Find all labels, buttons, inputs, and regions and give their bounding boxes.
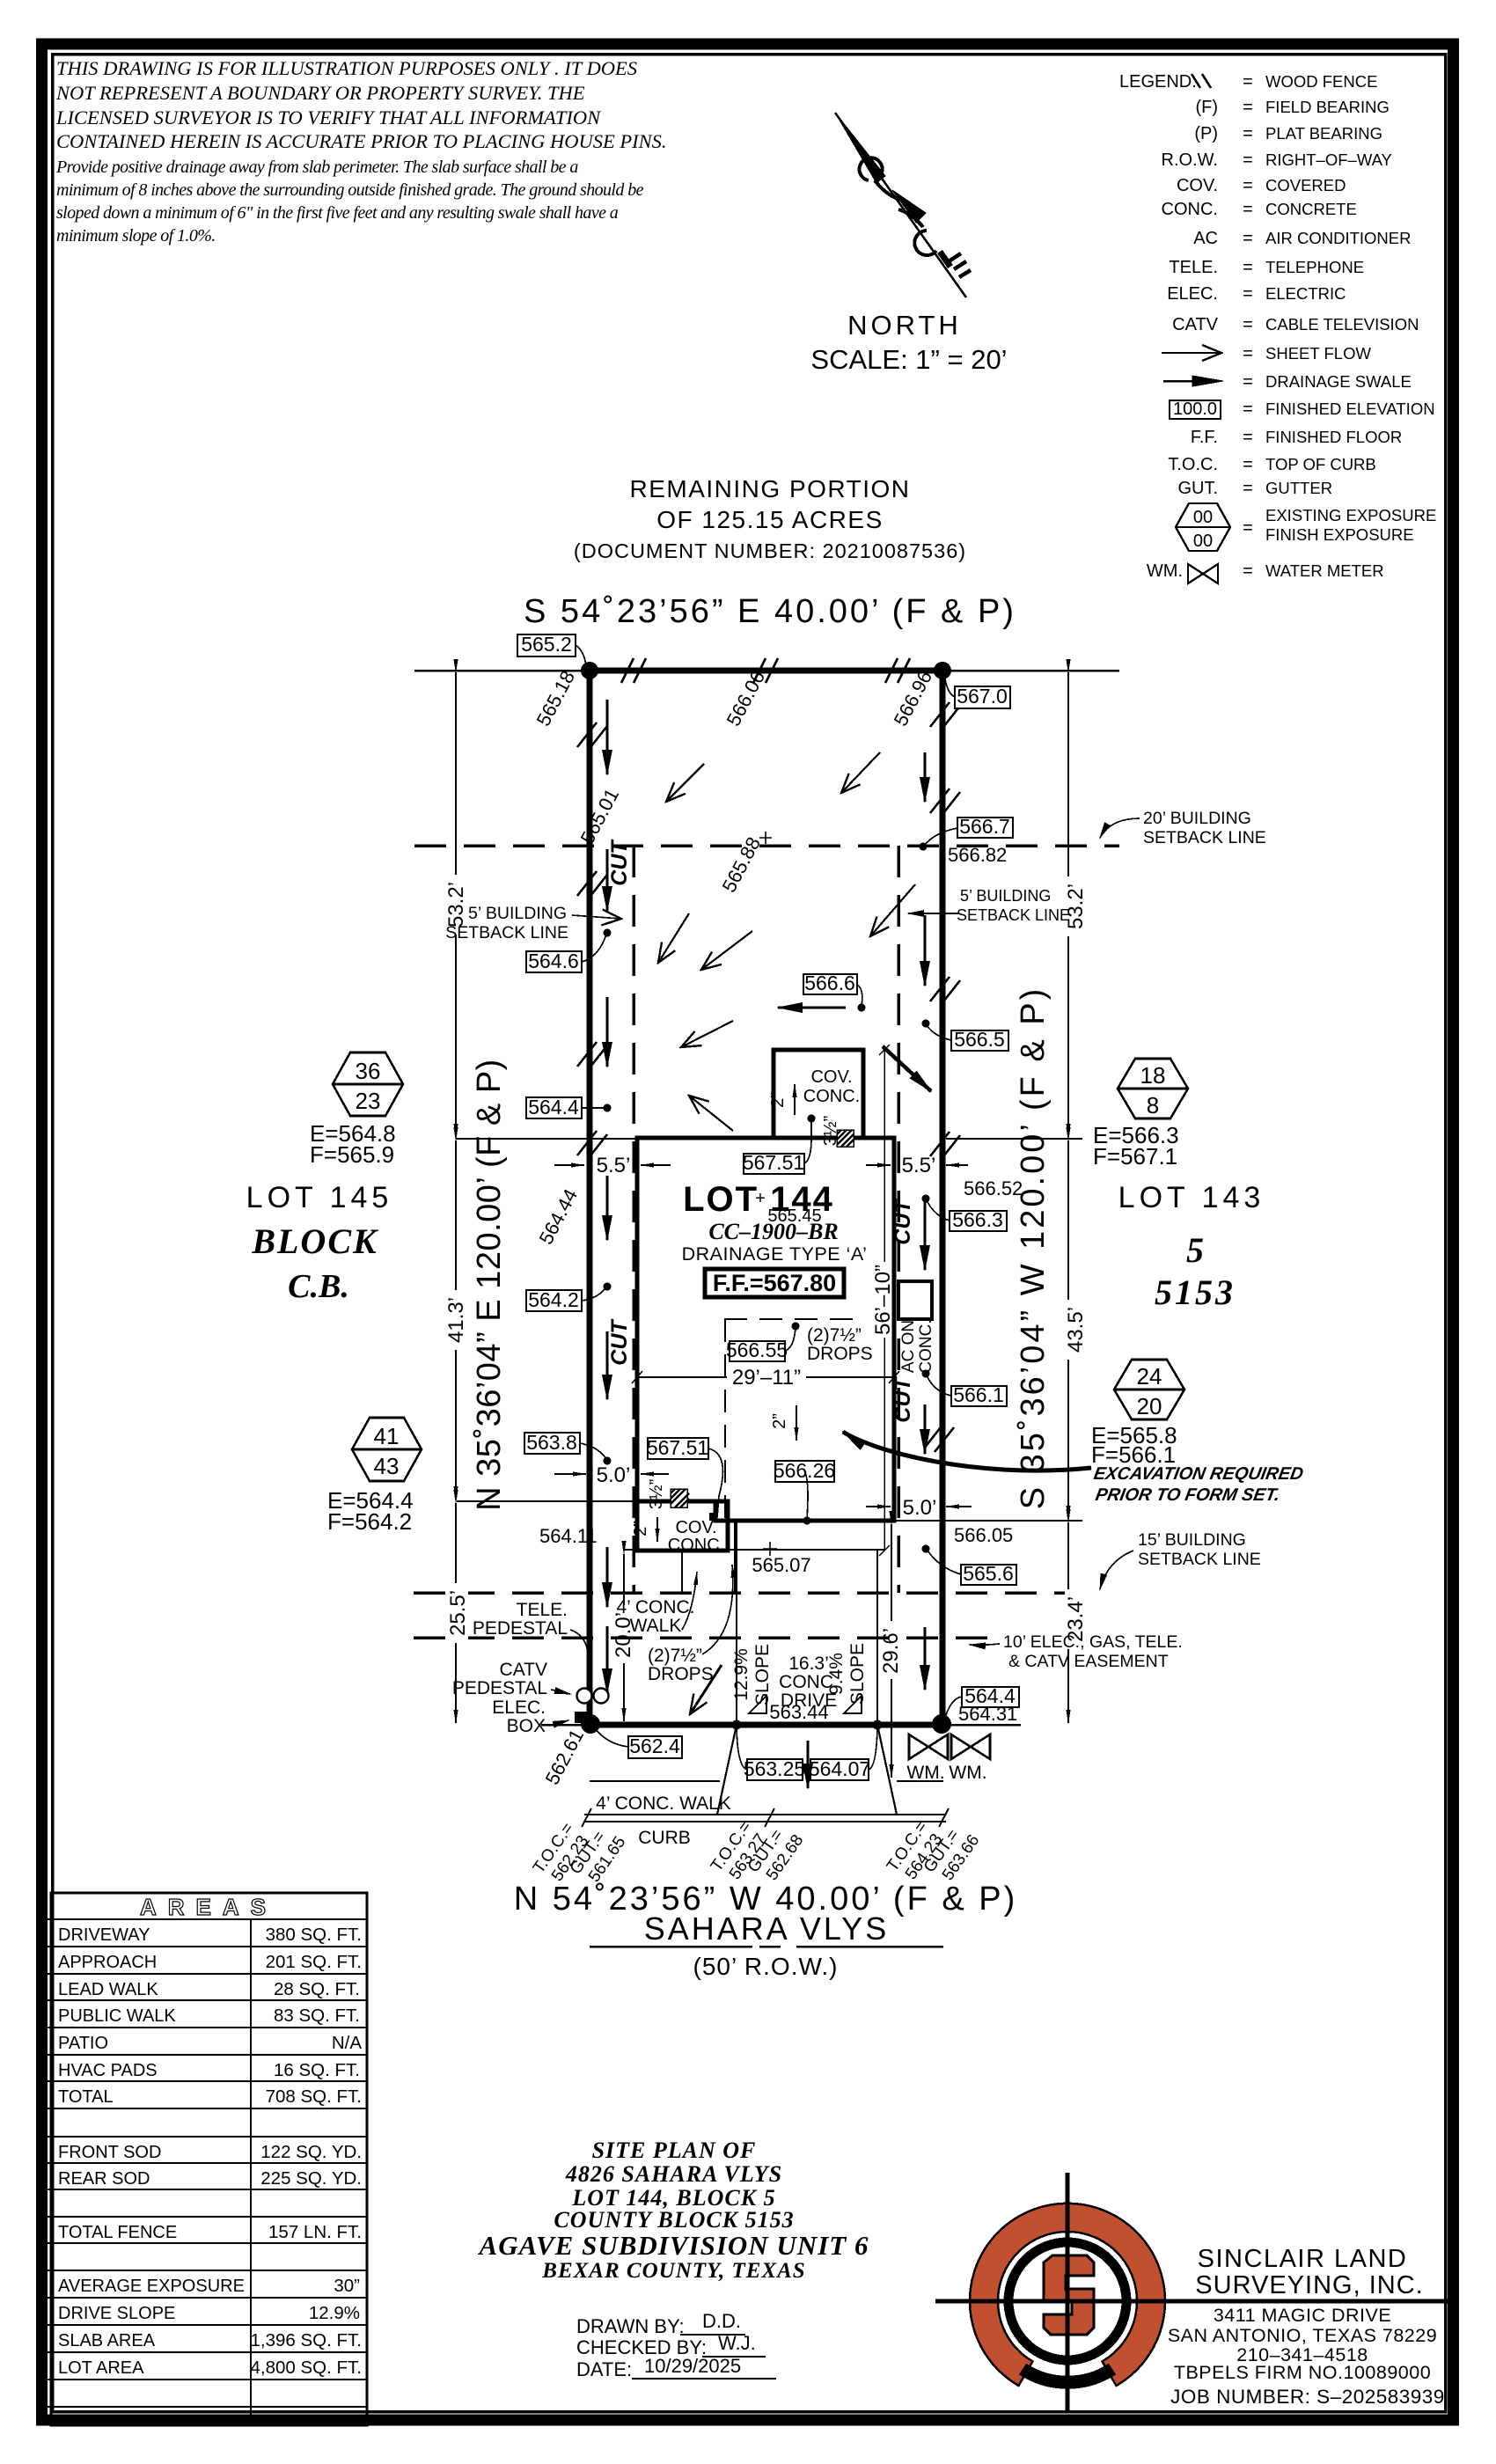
svg-text:CABLE TELEVISION: CABLE TELEVISION bbox=[1265, 315, 1419, 334]
svg-text:00: 00 bbox=[1193, 508, 1213, 527]
svg-text:WALK: WALK bbox=[630, 1616, 682, 1636]
svg-text:(F): (F) bbox=[1195, 98, 1218, 117]
svg-text:APPROACH: APPROACH bbox=[58, 1953, 157, 1972]
svg-text:566.6: 566.6 bbox=[804, 972, 855, 994]
svg-text:SETBACK LINE: SETBACK LINE bbox=[1143, 828, 1266, 847]
svg-text:TOTAL FENCE: TOTAL FENCE bbox=[58, 2223, 177, 2242]
svg-text:CONC.: CONC. bbox=[917, 1319, 935, 1373]
svg-text:380 SQ. FT.: 380 SQ. FT. bbox=[266, 1925, 362, 1945]
svg-text:24: 24 bbox=[1137, 1363, 1162, 1390]
svg-text:GUT.: GUT. bbox=[1177, 479, 1218, 498]
svg-text:=: = bbox=[1243, 98, 1253, 117]
svg-text:BLOCK: BLOCK bbox=[251, 1221, 378, 1261]
svg-text:R.O.W.: R.O.W. bbox=[1162, 150, 1218, 170]
svg-text:TOTAL: TOTAL bbox=[58, 2087, 114, 2107]
svg-text:=: = bbox=[1243, 315, 1253, 334]
svg-text:FRONT SOD: FRONT SOD bbox=[58, 2143, 161, 2162]
svg-text:AREAS: AREAS bbox=[140, 1894, 277, 1920]
svg-text:N 35˚36’04” E 120.00’ (F & P): N 35˚36’04” E 120.00’ (F & P) bbox=[471, 1059, 508, 1511]
svg-text:566.26: 566.26 bbox=[774, 1459, 835, 1482]
svg-text:567.0: 567.0 bbox=[957, 685, 1008, 708]
svg-text:TELE.: TELE. bbox=[1169, 258, 1218, 277]
svg-text:1,396 SQ. FT.: 1,396 SQ. FT. bbox=[251, 2330, 362, 2350]
svg-text:SETBACK LINE: SETBACK LINE bbox=[445, 923, 568, 942]
svg-text:DRAWN BY:: DRAWN BY: bbox=[576, 2315, 685, 2337]
svg-text:567.51: 567.51 bbox=[647, 1436, 708, 1459]
svg-text:DRIVE: DRIVE bbox=[781, 1690, 837, 1711]
svg-text:CONC.: CONC. bbox=[803, 1087, 860, 1106]
svg-text:S 35˚36’04” W 120.00’ (F & P): S 35˚36’04” W 120.00’ (F & P) bbox=[1015, 986, 1052, 1510]
svg-text:THIS DRAWING IS FOR ILLUSTRATI: THIS DRAWING IS FOR ILLUSTRATION PURPOSE… bbox=[56, 57, 637, 79]
svg-text:56’–10”: 56’–10” bbox=[871, 1265, 895, 1335]
svg-text:PUBLIC WALK: PUBLIC WALK bbox=[58, 2006, 176, 2026]
svg-text:18: 18 bbox=[1140, 1062, 1166, 1089]
svg-text:F=566.1: F=566.1 bbox=[1091, 1441, 1176, 1468]
svg-text:CC–1900–BR: CC–1900–BR bbox=[708, 1219, 838, 1244]
svg-text:5.0’: 5.0’ bbox=[903, 1496, 937, 1520]
svg-text:CUT: CUT bbox=[607, 1318, 632, 1366]
svg-text:CUT: CUT bbox=[891, 1375, 915, 1423]
svg-text:566.5: 566.5 bbox=[954, 1028, 1005, 1051]
svg-text:AC: AC bbox=[1193, 229, 1218, 248]
svg-text:AGAVE SUBDIVISION UNIT 6: AGAVE SUBDIVISION UNIT 6 bbox=[478, 2230, 869, 2261]
svg-text:FINISHED ELEVATION: FINISHED ELEVATION bbox=[1265, 400, 1435, 418]
svg-text:562.4: 562.4 bbox=[629, 1734, 680, 1757]
svg-text:PLAT BEARING: PLAT BEARING bbox=[1265, 124, 1382, 143]
svg-text:(DOCUMENT NUMBER: 20210087536: (DOCUMENT NUMBER: 20210087536) bbox=[574, 539, 966, 562]
svg-text:COUNTY BLOCK 5153: COUNTY BLOCK 5153 bbox=[554, 2207, 794, 2233]
svg-text:FINISHED FLOOR: FINISHED FLOOR bbox=[1265, 428, 1402, 446]
svg-text:564.2: 564.2 bbox=[528, 1288, 579, 1311]
svg-text:DATE:: DATE: bbox=[576, 2358, 632, 2380]
svg-text:3½”: 3½” bbox=[647, 1479, 666, 1509]
svg-text:FINISH EXPOSURE: FINISH EXPOSURE bbox=[1265, 525, 1414, 544]
svg-text:PEDESTAL: PEDESTAL bbox=[473, 1618, 568, 1639]
svg-text:F=567.1: F=567.1 bbox=[1093, 1143, 1177, 1170]
svg-text:3½”: 3½” bbox=[821, 1116, 840, 1146]
svg-text:AVERAGE EXPOSURE: AVERAGE EXPOSURE bbox=[58, 2277, 245, 2296]
svg-text:=: = bbox=[1243, 176, 1253, 195]
svg-text:RIGHT–OF–WAY: RIGHT–OF–WAY bbox=[1265, 150, 1392, 169]
svg-text:D.D.: D.D. bbox=[702, 2310, 741, 2332]
svg-text:F=564.2: F=564.2 bbox=[327, 1508, 412, 1535]
svg-text:(P): (P) bbox=[1194, 124, 1218, 143]
svg-text:CURB: CURB bbox=[638, 1828, 691, 1848]
svg-text:DROPS: DROPS bbox=[648, 1664, 714, 1684]
svg-text:5.0’: 5.0’ bbox=[597, 1463, 631, 1487]
svg-text:566.55: 566.55 bbox=[726, 1338, 788, 1361]
svg-text:sloped down a minimum of 6" in: sloped down a minimum of 6" in the first… bbox=[56, 203, 619, 223]
svg-text:CONC.: CONC. bbox=[779, 1672, 839, 1692]
svg-text:PRIOR TO FORM SET.: PRIOR TO FORM SET. bbox=[1094, 1485, 1281, 1505]
svg-text:DRAINAGE TYPE ‘A’: DRAINAGE TYPE ‘A’ bbox=[682, 1243, 868, 1265]
svg-text:TELE.: TELE. bbox=[517, 1600, 568, 1620]
svg-text:122 SQ. YD.: 122 SQ. YD. bbox=[260, 2142, 362, 2162]
svg-text:5.5’: 5.5’ bbox=[902, 1154, 936, 1177]
svg-text:AC ON: AC ON bbox=[899, 1320, 918, 1373]
svg-text:WM.: WM. bbox=[949, 1763, 986, 1783]
svg-text:=: = bbox=[1243, 258, 1253, 277]
svg-text:LEGEND:: LEGEND: bbox=[1119, 72, 1197, 92]
svg-text:566.05: 566.05 bbox=[954, 1524, 1013, 1546]
svg-text:SHEET FLOW: SHEET FLOW bbox=[1265, 344, 1371, 363]
svg-text:36: 36 bbox=[356, 1058, 381, 1084]
svg-text:=: = bbox=[1243, 518, 1253, 538]
svg-text:3411 MAGIC DRIVE: 3411 MAGIC DRIVE bbox=[1214, 2305, 1391, 2326]
svg-text:OF 125.15 ACRES: OF 125.15 ACRES bbox=[656, 506, 884, 533]
svg-text:565.2: 565.2 bbox=[521, 633, 572, 656]
svg-text:DROPS: DROPS bbox=[807, 1344, 873, 1364]
svg-text:SINCLAIR LAND: SINCLAIR LAND bbox=[1198, 2245, 1408, 2273]
svg-text:25.5’: 25.5’ bbox=[446, 1590, 470, 1636]
svg-text:16.3’: 16.3’ bbox=[788, 1654, 829, 1674]
svg-text:2”: 2” bbox=[770, 1413, 789, 1429]
svg-text:=: = bbox=[1243, 200, 1253, 219]
svg-text:TBPELS FIRM NO.10089000: TBPELS FIRM NO.10089000 bbox=[1174, 2362, 1431, 2383]
svg-text:& CATV EASEMENT: & CATV EASEMENT bbox=[1008, 1652, 1169, 1671]
svg-text:43: 43 bbox=[374, 1453, 400, 1479]
svg-text:12.9%: 12.9% bbox=[731, 1648, 752, 1701]
svg-text:ELEC.: ELEC. bbox=[1167, 284, 1218, 304]
svg-text:WM.: WM. bbox=[906, 1763, 944, 1783]
svg-text:=: = bbox=[1243, 400, 1253, 419]
svg-text:DRIVEWAY: DRIVEWAY bbox=[58, 1925, 150, 1945]
svg-text:PATIO: PATIO bbox=[58, 2034, 108, 2053]
svg-text:566.3: 566.3 bbox=[952, 1208, 1003, 1231]
svg-text:16 SQ. FT.: 16 SQ. FT. bbox=[274, 2060, 360, 2080]
svg-text:SLOPE: SLOPE bbox=[752, 1644, 773, 1705]
svg-text:29’–11”: 29’–11” bbox=[732, 1366, 801, 1390]
svg-text:(50’ R.O.W.): (50’ R.O.W.) bbox=[693, 1953, 839, 1980]
svg-text:15’ BUILDING: 15’ BUILDING bbox=[1138, 1530, 1246, 1550]
svg-text:CONC.: CONC. bbox=[1162, 200, 1218, 219]
svg-text:100.0: 100.0 bbox=[1173, 400, 1217, 419]
svg-text:41: 41 bbox=[374, 1423, 400, 1449]
svg-text:NORTH: NORTH bbox=[847, 310, 962, 341]
svg-text:4826 SAHARA VLYS: 4826 SAHARA VLYS bbox=[565, 2161, 782, 2187]
svg-text:LOT AREA: LOT AREA bbox=[58, 2358, 144, 2378]
svg-text:565.07: 565.07 bbox=[752, 1554, 810, 1576]
svg-text:SAHARA VLYS: SAHARA VLYS bbox=[644, 1910, 889, 1947]
svg-text:LEAD WALK: LEAD WALK bbox=[58, 1980, 158, 1999]
svg-text:566.1: 566.1 bbox=[953, 1383, 1004, 1406]
svg-text:564.07: 564.07 bbox=[809, 1757, 870, 1780]
svg-text:=: = bbox=[1243, 124, 1253, 143]
svg-text:12.9%: 12.9% bbox=[309, 2303, 360, 2323]
svg-text:566.82: 566.82 bbox=[948, 844, 1007, 866]
svg-text:REAR SOD: REAR SOD bbox=[58, 2169, 150, 2189]
svg-text:PEDESTAL: PEDESTAL bbox=[452, 1678, 547, 1698]
svg-text:4,800 SQ. FT.: 4,800 SQ. FT. bbox=[251, 2358, 362, 2378]
svg-text:REMAINING PORTION: REMAINING PORTION bbox=[629, 475, 910, 502]
svg-text:565.6: 565.6 bbox=[963, 1562, 1014, 1585]
svg-text:CATV: CATV bbox=[500, 1660, 547, 1680]
svg-text:T.O.C.: T.O.C. bbox=[1168, 455, 1218, 474]
svg-text:COV.: COV. bbox=[810, 1067, 852, 1087]
svg-text:DRAINAGE SWALE: DRAINAGE SWALE bbox=[1265, 372, 1412, 391]
svg-text:CONCRETE: CONCRETE bbox=[1265, 200, 1357, 218]
svg-text:563.25: 563.25 bbox=[744, 1757, 805, 1780]
svg-text:CUT: CUT bbox=[607, 839, 632, 886]
svg-text:SITE PLAN OF: SITE PLAN OF bbox=[592, 2138, 757, 2163]
svg-text:564.31: 564.31 bbox=[958, 1703, 1017, 1725]
svg-text:SETBACK LINE: SETBACK LINE bbox=[957, 906, 1070, 924]
svg-text:DRIVE SLOPE: DRIVE SLOPE bbox=[58, 2304, 175, 2323]
svg-text:WM.: WM. bbox=[1147, 561, 1183, 581]
svg-text:COV.: COV. bbox=[675, 1518, 716, 1537]
svg-text:43.5’: 43.5’ bbox=[1064, 1307, 1088, 1353]
svg-text:(2)7½”: (2)7½” bbox=[648, 1646, 702, 1666]
svg-text:WOOD FENCE: WOOD FENCE bbox=[1265, 72, 1377, 91]
svg-text:SLAB AREA: SLAB AREA bbox=[58, 2331, 156, 2350]
svg-text:41.3’: 41.3’ bbox=[444, 1297, 468, 1343]
svg-text:=: = bbox=[1243, 150, 1253, 170]
svg-text:=: = bbox=[1243, 284, 1253, 304]
svg-text:GUTTER: GUTTER bbox=[1265, 479, 1332, 497]
svg-text:BOX: BOX bbox=[507, 1716, 546, 1736]
svg-text:TELEPHONE: TELEPHONE bbox=[1265, 258, 1364, 276]
svg-text:JOB NUMBER: S–202583939: JOB NUMBER: S–202583939 bbox=[1170, 2386, 1445, 2408]
svg-text:564.4: 564.4 bbox=[528, 1096, 579, 1118]
svg-text:29.6’: 29.6’ bbox=[879, 1628, 903, 1674]
svg-text:Provide positive drainage away: Provide positive drainage away from slab… bbox=[55, 158, 578, 177]
svg-text:AIR CONDITIONER: AIR CONDITIONER bbox=[1265, 229, 1411, 247]
svg-text:708 SQ. FT.: 708 SQ. FT. bbox=[266, 2086, 362, 2107]
svg-text:566.7: 566.7 bbox=[959, 815, 1010, 838]
svg-text:5.5’: 5.5’ bbox=[597, 1154, 631, 1177]
svg-text:4’ CONC. WALK: 4’ CONC. WALK bbox=[596, 1793, 731, 1814]
svg-text:563.8: 563.8 bbox=[526, 1431, 577, 1454]
svg-text:CONTAINED HEREIN IS ACCURATE P: CONTAINED HEREIN IS ACCURATE PRIOR TO PL… bbox=[56, 130, 667, 152]
svg-text:567.51: 567.51 bbox=[743, 1151, 804, 1174]
svg-text:=: = bbox=[1243, 561, 1253, 581]
svg-text:=: = bbox=[1243, 372, 1253, 392]
svg-text:564.6: 564.6 bbox=[528, 950, 579, 972]
svg-text:COV.: COV. bbox=[1177, 176, 1218, 195]
svg-text:=: = bbox=[1243, 72, 1253, 92]
svg-text:WATER METER: WATER METER bbox=[1265, 561, 1384, 580]
svg-text:566.52: 566.52 bbox=[964, 1177, 1023, 1199]
svg-text:5: 5 bbox=[1186, 1230, 1204, 1270]
svg-text:564.11: 564.11 bbox=[539, 1525, 598, 1547]
svg-text:SAN ANTONIO, TEXAS 78229: SAN ANTONIO, TEXAS 78229 bbox=[1168, 2325, 1437, 2346]
svg-text:5’ BUILDING: 5’ BUILDING bbox=[468, 904, 567, 923]
svg-text:F=565.9: F=565.9 bbox=[310, 1141, 394, 1168]
svg-text:NOT REPRESENT A BOUNDARY OR PR: NOT REPRESENT A BOUNDARY OR PROPERTY SUR… bbox=[55, 82, 585, 104]
svg-text:LOT 143: LOT 143 bbox=[1118, 1181, 1265, 1214]
svg-text:8: 8 bbox=[1147, 1092, 1159, 1118]
svg-text:CONC.: CONC. bbox=[668, 1536, 724, 1555]
svg-text:TOP OF CURB: TOP OF CURB bbox=[1265, 455, 1376, 473]
svg-text:=: = bbox=[1243, 428, 1253, 447]
svg-text:SURVEYING, INC.: SURVEYING, INC. bbox=[1195, 2271, 1423, 2299]
svg-text:LOT 145: LOT 145 bbox=[246, 1181, 393, 1214]
svg-text:157 LN. FT.: 157 LN. FT. bbox=[268, 2222, 362, 2242]
svg-text:83 SQ. FT.: 83 SQ. FT. bbox=[274, 2006, 360, 2026]
svg-text:FIELD BEARING: FIELD BEARING bbox=[1265, 98, 1390, 116]
svg-text:4’ CONC.: 4’ CONC. bbox=[616, 1597, 694, 1617]
svg-text:minimum of 8 inches above the: minimum of 8 inches above the surroundin… bbox=[56, 180, 644, 200]
svg-text:28 SQ. FT.: 28 SQ. FT. bbox=[274, 1979, 360, 1999]
svg-text:S 54˚23’56” E 40.00’ (F & P): S 54˚23’56” E 40.00’ (F & P) bbox=[524, 593, 1016, 630]
svg-text:COVERED: COVERED bbox=[1265, 176, 1346, 194]
svg-text:ELEC.: ELEC. bbox=[492, 1698, 546, 1718]
svg-text:CATV: CATV bbox=[1172, 315, 1219, 334]
svg-text:10/29/2025: 10/29/2025 bbox=[644, 2355, 741, 2377]
svg-text:F.F.: F.F. bbox=[1191, 428, 1218, 447]
svg-text:5’ BUILDING: 5’ BUILDING bbox=[960, 887, 1051, 905]
svg-text:SETBACK LINE: SETBACK LINE bbox=[1138, 1550, 1261, 1569]
svg-text:2”: 2” bbox=[768, 1092, 788, 1108]
svg-text:20: 20 bbox=[1137, 1393, 1162, 1419]
svg-text:=: = bbox=[1243, 479, 1253, 498]
svg-text:SLOPE: SLOPE bbox=[847, 1643, 868, 1705]
svg-text:F.F.=567.80: F.F.=567.80 bbox=[713, 1270, 836, 1296]
svg-text:2”: 2” bbox=[631, 1521, 650, 1536]
svg-text:N/A: N/A bbox=[332, 2033, 363, 2053]
svg-text:30”: 30” bbox=[334, 2276, 360, 2296]
svg-text:minimum slope of 1.0%.: minimum slope of 1.0%. bbox=[56, 226, 216, 246]
svg-text:=: = bbox=[1243, 344, 1253, 363]
svg-text:EXISTING EXPOSURE: EXISTING EXPOSURE bbox=[1265, 506, 1436, 524]
svg-text:HVAC PADS: HVAC PADS bbox=[58, 2061, 158, 2080]
svg-text:C.B.: C.B. bbox=[288, 1268, 349, 1305]
svg-text:10’ ELEC., GAS, TELE.: 10’ ELEC., GAS, TELE. bbox=[1003, 1632, 1183, 1652]
svg-text:SCALE: 1” = 20’: SCALE: 1” = 20’ bbox=[810, 344, 1007, 375]
svg-text:BEXAR COUNTY, TEXAS: BEXAR COUNTY, TEXAS bbox=[541, 2259, 805, 2283]
svg-text:ELECTRIC: ELECTRIC bbox=[1265, 284, 1346, 303]
svg-text:225 SQ. YD.: 225 SQ. YD. bbox=[260, 2168, 362, 2189]
svg-text:=: = bbox=[1243, 229, 1253, 248]
svg-text:(2)7½”: (2)7½” bbox=[807, 1325, 862, 1346]
svg-text:=: = bbox=[1243, 455, 1253, 474]
svg-text:23: 23 bbox=[356, 1088, 381, 1114]
svg-text:5153: 5153 bbox=[1155, 1272, 1236, 1312]
svg-text:00: 00 bbox=[1193, 532, 1213, 551]
svg-text:CUT: CUT bbox=[891, 1198, 915, 1245]
svg-text:53.2’: 53.2’ bbox=[444, 882, 468, 928]
svg-text:LICENSED SURVEYOR IS TO VERIFY: LICENSED SURVEYOR IS TO VERIFY THAT ALL … bbox=[55, 106, 602, 128]
svg-text:20’ BUILDING: 20’ BUILDING bbox=[1143, 809, 1251, 828]
svg-text:+: + bbox=[755, 1189, 766, 1208]
svg-text:201 SQ. FT.: 201 SQ. FT. bbox=[266, 1952, 362, 1972]
